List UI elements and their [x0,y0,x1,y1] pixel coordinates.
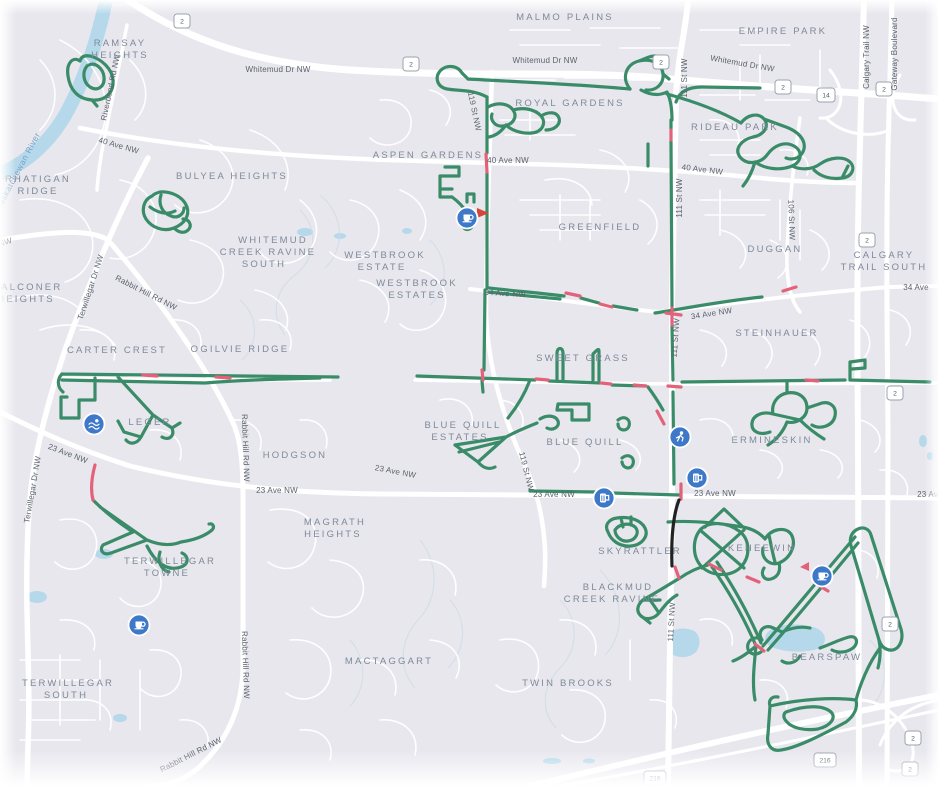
svg-text:2: 2 [659,59,663,66]
road-label: 40 Ave NW [487,156,529,165]
neighborhood-label: WESTBROOK [376,278,458,289]
neighborhood-label: GREENFIELD [559,222,642,233]
cafe-poi-icon[interactable] [129,615,150,636]
svg-text:2: 2 [882,86,886,93]
brewery-poi-icon[interactable] [594,488,615,509]
neighborhood-label: CARTER CREST [67,345,167,356]
neighborhood-label: BLUE QUILL [547,437,624,448]
map-canvas[interactable]: 2 2 2 2 14 2 2 2 2 216 216 2 2 Whitemud … [0,0,939,786]
neighborhood-label: TWIN BROOKS [522,678,614,689]
highway-shield: 2 [859,233,875,247]
neighborhood-label: TERWILLEGAR [124,556,216,567]
highway-shield: 2 [775,80,791,94]
neighborhood-label: SOUTH [242,259,286,270]
swimming-poi-icon[interactable] [84,414,105,435]
neighborhood-label: RAMSAY [94,38,147,49]
road-label: Calgary Trail NW [862,25,871,89]
neighborhood-label: HODGSON [263,450,328,461]
neighborhood-label: CREEK RAVINE [564,594,660,605]
neighborhood-label: HEIGHTS [91,50,149,61]
road-label: 111 St NW [675,178,684,218]
road-label: 23 Ave NW [256,486,298,495]
highway-shield: 2 [882,617,898,631]
cup-icon [819,573,826,580]
neighborhood-label: MACTAGGART [345,656,433,667]
svg-text:2: 2 [781,84,785,91]
neighborhood-label: EMPIRE PARK [739,26,827,37]
cup-icon [464,215,471,222]
highway-shield: 2 [653,55,669,69]
neighborhood-label: ROYAL GARDENS [515,98,624,109]
road-label: Whitemud Dr NW [512,56,577,65]
road-label: 106 St NW [786,200,796,241]
cafe-poi-icon[interactable] [457,208,478,229]
neighborhood-label: KEHEEWIN [728,543,796,554]
neighborhood-label: WHITEMUD [238,235,308,246]
neighborhood-label: WESTBROOK [344,250,426,261]
svg-text:2: 2 [180,18,184,25]
neighborhood-label: SKYRATTLER [598,546,682,557]
neighborhood-label: ESTATES [388,290,445,301]
neighborhood-label: MAGRATH [304,517,366,528]
swimmer-icon [95,419,98,422]
neighborhood-label: ESTATE [358,262,407,273]
neighborhood-label: ERMINESKIN [731,435,812,446]
highway-shield: 14 [817,88,835,102]
neighborhood-label: LEGER [128,417,171,428]
neighborhood-label: TRAIL SOUTH [841,262,928,273]
neighborhood-label: CREEK RAVINE [220,247,316,258]
person-icon [680,431,683,434]
neighborhood-label: RIDGE [17,186,58,197]
road-label: Whitemud Dr NW [245,65,310,74]
brewery-poi-icon[interactable] [687,468,708,489]
road-label: 111 St NW [680,58,689,98]
highway-shield: 2 [905,731,921,745]
beer-mug-icon [693,474,699,483]
cup-icon [136,622,143,629]
svg-text:2: 2 [888,621,892,628]
beer-mug-icon [600,494,606,503]
neighborhood-label: SOUTH [44,690,88,701]
neighborhood-label: DUGGAN [748,244,803,255]
cyclist-poi-icon[interactable] [670,427,691,448]
neighborhood-label: STEINHAUER [735,328,818,339]
neighborhood-label: BLUE QUILL [425,420,502,431]
neighborhood-label: RIDEAU PARK [691,122,779,133]
neighborhood-label: ESTATES [431,432,488,443]
svg-text:14: 14 [822,92,830,99]
svg-text:2: 2 [409,61,413,68]
neighborhood-label: BULYEA HEIGHTS [176,171,288,182]
neighborhood-label: SWEET GRASS [536,353,630,364]
neighborhood-label: OGILVIE RIDGE [191,344,290,355]
highway-shield: 2 [174,14,190,28]
highway-shield: 2 [403,57,419,71]
cafe-poi-icon[interactable] [812,566,833,587]
neighborhood-label: BEARSPAW [792,652,862,663]
neighborhood-label: ASPEN GARDENS [373,150,483,161]
map-viewport[interactable]: 2 2 2 2 14 2 2 2 2 216 216 2 2 Whitemud … [0,0,939,786]
neighborhood-label: TERWILLEGAR [22,678,114,689]
neighborhood-label: BLACKMUD [583,582,653,593]
svg-text:2: 2 [911,735,915,742]
road-label: Gateway Boulevard [890,17,899,90]
svg-text:2: 2 [865,237,869,244]
road-label: 23 Ave NW [694,489,736,498]
neighborhood-label: HEIGHTS [304,529,362,540]
road-label: 23 Ave NW [533,490,575,499]
svg-text:2: 2 [893,390,897,397]
neighborhood-label: TOWNE [144,568,190,579]
neighborhood-label: CALGARY [854,250,915,261]
highway-shield: 2 [887,386,903,400]
